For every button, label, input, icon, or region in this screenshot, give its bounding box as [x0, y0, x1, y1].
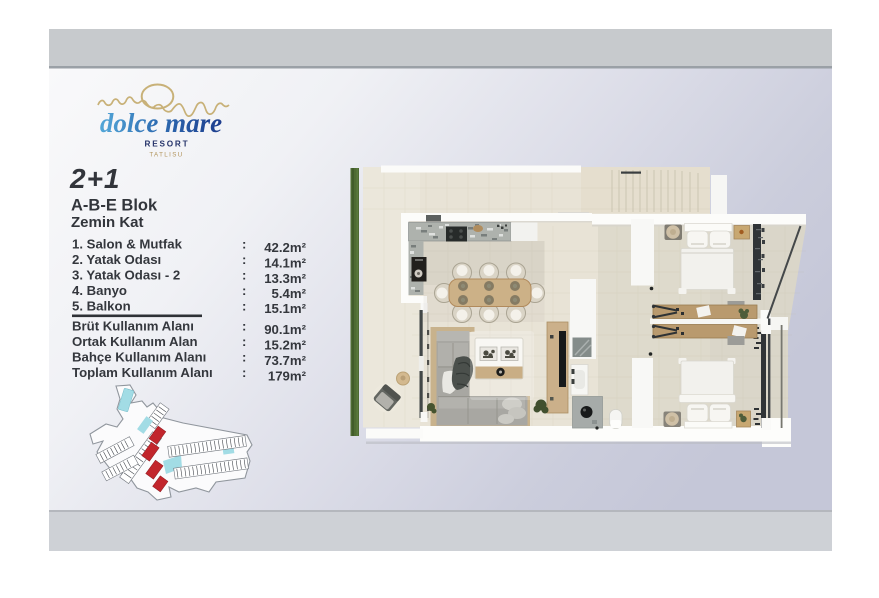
svg-text:90.1m²: 90.1m² [264, 322, 306, 337]
svg-text:2+1: 2+1 [69, 163, 121, 194]
svg-text:179m²: 179m² [268, 369, 307, 384]
svg-text:Bahçe Kullanım Alanı: Bahçe Kullanım Alanı [72, 350, 206, 365]
svg-text:4. Banyo: 4. Banyo [72, 283, 127, 298]
svg-text:3. Yatak Odası - 2: 3. Yatak Odası - 2 [72, 268, 180, 283]
svg-text:1. Salon & Mutfak: 1. Salon & Mutfak [72, 237, 183, 252]
svg-text:73.7m²: 73.7m² [264, 353, 306, 368]
svg-text:Zemin Kat: Zemin Kat [71, 214, 144, 231]
svg-text:2. Yatak Odası: 2. Yatak Odası [72, 252, 161, 267]
svg-text:15.1m²: 15.1m² [264, 301, 306, 316]
svg-text::: : [242, 283, 246, 298]
svg-text:dolce mare: dolce mare [100, 108, 222, 138]
svg-text:14.1m²: 14.1m² [264, 256, 306, 271]
svg-text:Ortak Kullanım Alan: Ortak Kullanım Alan [72, 334, 198, 349]
svg-text::: : [242, 319, 246, 334]
svg-text:RESORT: RESORT [145, 140, 190, 149]
svg-text::: : [242, 350, 246, 365]
svg-text:5.4m²: 5.4m² [272, 286, 307, 301]
svg-text:42.2m²: 42.2m² [264, 240, 306, 255]
svg-text::: : [242, 334, 246, 349]
svg-text:5. Balkon: 5. Balkon [72, 299, 131, 314]
svg-text::: : [242, 365, 246, 380]
svg-text::: : [242, 299, 246, 314]
svg-text::: : [242, 237, 246, 252]
svg-text:Brüt Kullanım Alanı: Brüt Kullanım Alanı [72, 319, 194, 334]
svg-text::: : [242, 268, 246, 283]
svg-text:15.2m²: 15.2m² [264, 338, 306, 353]
svg-text:Toplam Kullanım Alanı: Toplam Kullanım Alanı [72, 365, 213, 380]
svg-text:TATLISU: TATLISU [149, 152, 183, 159]
svg-text::: : [242, 252, 246, 267]
svg-text:13.3m²: 13.3m² [264, 271, 306, 286]
svg-text:A-B-E Blok: A-B-E Blok [71, 197, 158, 215]
